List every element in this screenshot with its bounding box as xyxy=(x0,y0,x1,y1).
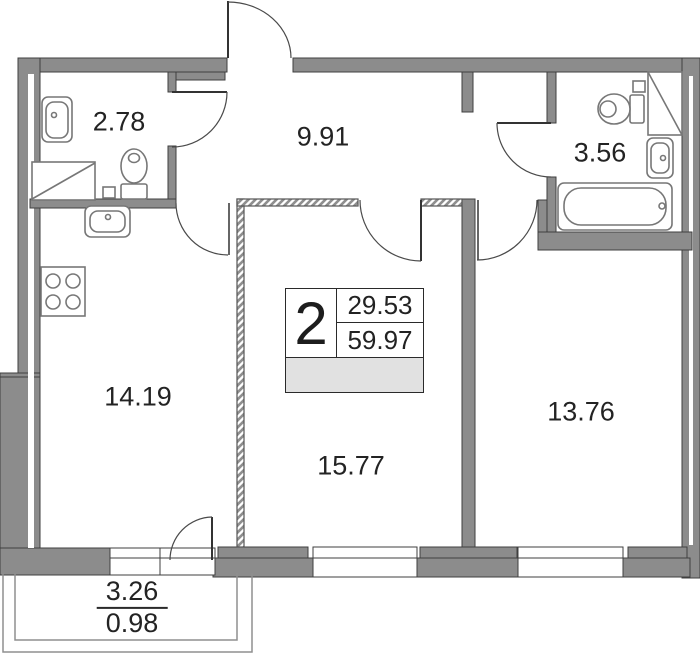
room-area-label-kitchen: 14.19 xyxy=(104,382,172,413)
room-area-label-bathroom-large: 3.56 xyxy=(574,138,627,169)
bath1-washing-machine-icon xyxy=(32,162,95,200)
balcony-area-reduced: 0.98 xyxy=(97,609,168,638)
room-area-label-hallway: 9.91 xyxy=(297,122,350,153)
balcony-area-full: 3.26 xyxy=(97,577,168,609)
wall-bottom-seg2 xyxy=(420,547,517,558)
room-area-label-living-room: 15.77 xyxy=(317,451,385,482)
room-area-label-bathroom-small: 2.78 xyxy=(93,107,146,138)
bath2-flush-box-icon xyxy=(633,81,645,92)
bathroom-small-door-icon xyxy=(172,92,227,147)
kitchen-sink-icon xyxy=(85,206,130,237)
bathroom-large-door-icon xyxy=(497,123,551,177)
bathtub-icon xyxy=(558,183,672,230)
apartment-living-area: 29.53 xyxy=(337,289,423,323)
apartment-room-count: 2 xyxy=(286,289,337,357)
apartment-info-box: 2 29.53 59.97 xyxy=(285,288,424,393)
entrance-door-icon xyxy=(228,1,291,58)
wall-bottom-left-block xyxy=(0,548,110,575)
floor-plan: 2.78 9.91 3.56 14.19 15.77 13.76 2 29.53… xyxy=(0,0,700,658)
info-box-gray-bar xyxy=(286,357,423,392)
wall-bath1-stub xyxy=(176,72,225,80)
balcony-door-threshold xyxy=(160,548,215,575)
wall-bath2-bottom xyxy=(538,232,692,250)
bath1-sink-icon xyxy=(42,97,72,142)
wall-living-bedroom-divider xyxy=(462,199,475,547)
wall-bottom-seg1 xyxy=(218,547,308,558)
wall-bottom-pier2 xyxy=(417,558,518,577)
wall-channel-right xyxy=(689,76,693,545)
wall-bottom-pier1 xyxy=(213,558,313,577)
wall-bath2-left-upper xyxy=(547,72,556,123)
wall-bottom-seg3 xyxy=(628,547,687,558)
bath2-washing-machine-icon xyxy=(648,72,682,135)
partition-living-top-right xyxy=(421,199,462,206)
bath2-toilet-icon xyxy=(598,94,644,124)
living-room-door-icon xyxy=(360,200,421,261)
bath1-toilet-icon xyxy=(121,149,147,199)
wall-hall-stub xyxy=(462,72,473,112)
bedroom-door-icon xyxy=(477,200,537,260)
wall-bath1-right-upper xyxy=(168,72,176,92)
wall-bottom-pier3 xyxy=(623,558,690,577)
bedroom-window-icon xyxy=(518,547,623,577)
kitchen-window-icon xyxy=(110,548,160,575)
stove-icon xyxy=(41,267,85,316)
wall-channel-left xyxy=(28,74,34,548)
partition-living-top-left xyxy=(237,199,358,206)
balcony-area-label: 3.26 0.98 xyxy=(97,577,168,637)
bath2-sink-icon xyxy=(647,138,673,178)
wall-top-right xyxy=(293,58,700,72)
wall-bath2-left-lower xyxy=(547,177,556,232)
partition-kitchen-living xyxy=(237,199,244,547)
apartment-total-area: 59.97 xyxy=(337,323,423,357)
living-window-icon xyxy=(313,547,417,577)
bath1-flush-box-icon xyxy=(103,187,115,198)
room-area-label-bedroom: 13.76 xyxy=(547,397,615,428)
kitchen-door-icon xyxy=(176,203,229,255)
windows xyxy=(110,547,623,577)
wall-top-left xyxy=(20,58,227,72)
